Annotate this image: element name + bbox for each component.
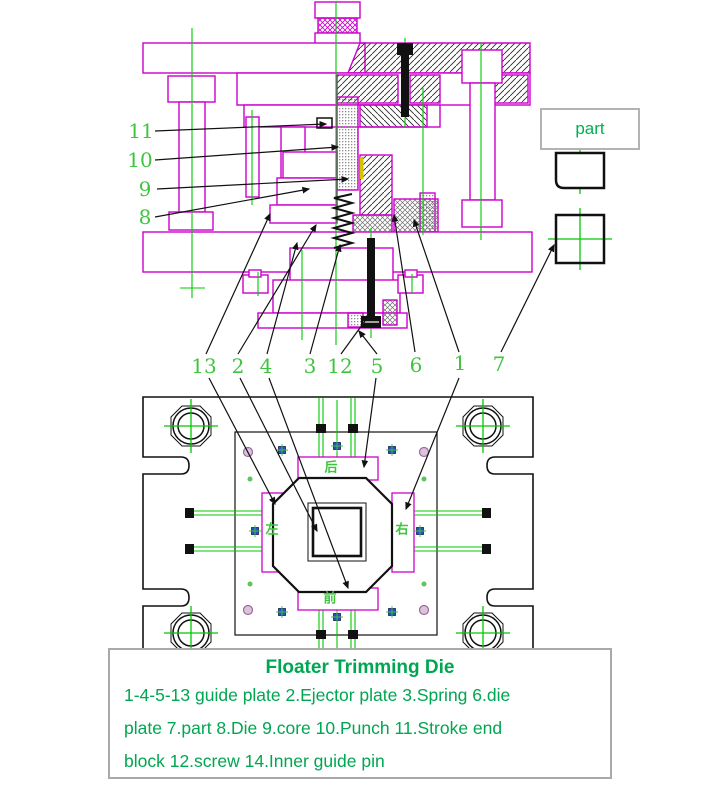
callout-12: 12: [327, 356, 352, 376]
callout-2: 2: [232, 356, 245, 376]
parts-list-line-1: 1-4-5-13 guide plate 2.Ejector plate 3.S…: [110, 679, 610, 712]
callout-8: 8: [139, 207, 152, 227]
part-label: part: [575, 119, 604, 139]
callout-1: 1: [454, 353, 467, 373]
cross-section-view: [143, 2, 532, 328]
part-label-box: part: [540, 108, 640, 150]
callout-6: 6: [410, 355, 423, 375]
plan-view: [143, 397, 533, 660]
callout-10: 10: [127, 150, 152, 170]
plan-label-rear: 后: [324, 461, 337, 474]
parts-list-line-2: plate 7.part 8.Die 9.core 10.Punch 11.St…: [110, 712, 610, 745]
part-section-shape: [556, 153, 604, 188]
callout-13: 13: [191, 356, 216, 376]
callout-4: 4: [260, 356, 273, 376]
part-detail: [548, 147, 612, 270]
caption-box: Floater Trimming Die 1-4-5-13 guide plat…: [108, 648, 612, 779]
plan-label-front: 前: [323, 592, 336, 605]
plan-label-left: 左: [265, 523, 278, 536]
plan-label-right: 右: [395, 523, 408, 536]
callout-11: 11: [128, 121, 153, 141]
parts-list-line-3: block 12.screw 14.Inner guide pin: [110, 745, 610, 778]
floater-trimming-die-figure: 11 10 9 8 13 2 4 3 12 5 6 1 7 后 左 右 前 pa…: [0, 0, 713, 803]
callout-5: 5: [371, 356, 384, 376]
bottom-screw: [367, 238, 375, 318]
callout-3: 3: [304, 356, 317, 376]
drawing-title: Floater Trimming Die: [110, 657, 610, 679]
callout-9: 9: [139, 179, 152, 199]
top-screw: [397, 43, 413, 55]
callout-7: 7: [493, 354, 506, 374]
